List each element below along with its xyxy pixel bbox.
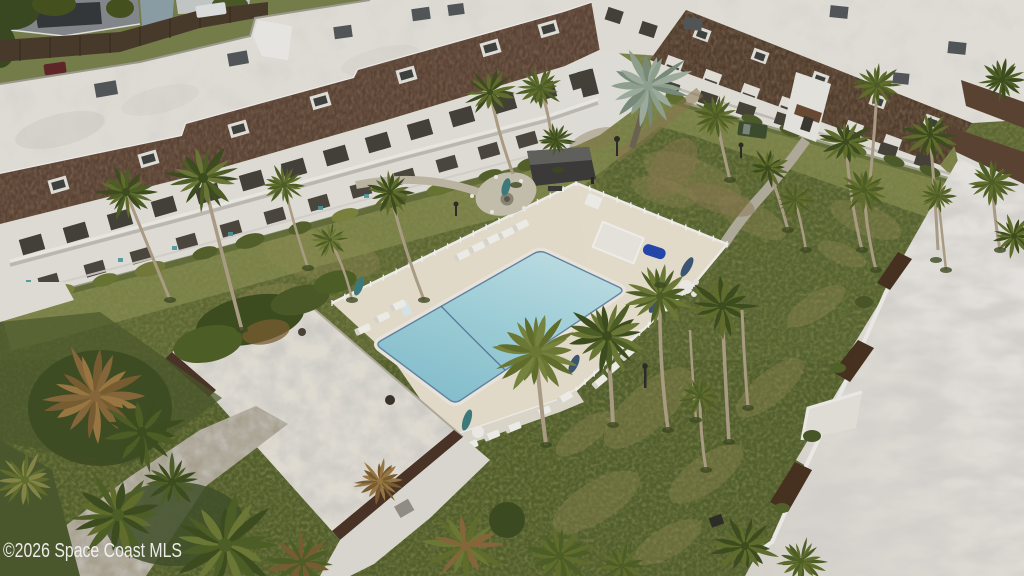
svg-text:©2026 Space Coast MLS: ©2026 Space Coast MLS xyxy=(3,539,182,562)
